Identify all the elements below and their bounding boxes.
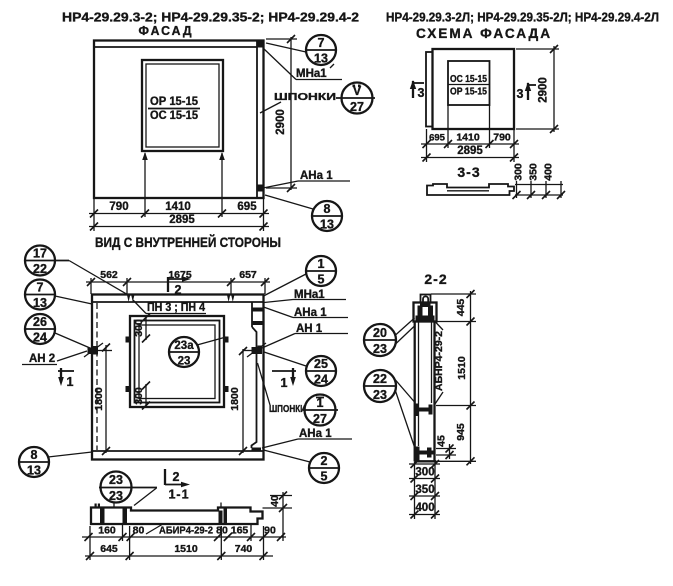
svg-text:5: 5 [321, 470, 328, 484]
svg-text:7: 7 [37, 281, 44, 295]
svg-text:ОС 15-15: ОС 15-15 [450, 73, 487, 85]
svg-text:1510: 1510 [174, 543, 198, 555]
svg-text:7: 7 [318, 36, 325, 50]
svg-text:300: 300 [133, 319, 145, 337]
svg-text:8: 8 [324, 202, 331, 216]
svg-text:20: 20 [373, 326, 387, 340]
svg-text:13: 13 [320, 218, 334, 232]
svg-text:445: 445 [455, 299, 467, 317]
svg-text:160: 160 [98, 525, 116, 537]
svg-text:400: 400 [415, 502, 434, 514]
svg-text:23: 23 [178, 356, 191, 368]
svg-text:740: 740 [235, 543, 253, 555]
svg-text:90: 90 [264, 525, 276, 537]
svg-text:1: 1 [318, 257, 325, 271]
svg-text:5: 5 [318, 273, 325, 287]
svg-text:27: 27 [313, 412, 327, 426]
svg-text:АНа 1: АНа 1 [299, 428, 332, 440]
svg-text:1: 1 [67, 375, 74, 389]
svg-text:80: 80 [133, 525, 145, 537]
svg-text:3: 3 [418, 86, 425, 100]
svg-text:1800: 1800 [229, 387, 241, 411]
svg-text:ПН 3 ; ПН 4: ПН 3 ; ПН 4 [147, 302, 206, 314]
svg-text:АБИР4-29-2: АБИР4-29-2 [159, 525, 213, 537]
svg-text:АБНР4-29-2: АБНР4-29-2 [433, 331, 445, 391]
svg-text:1: 1 [281, 376, 288, 390]
svg-text:ШПОНКИ: ШПОНКИ [269, 403, 306, 415]
svg-text:695: 695 [237, 201, 257, 213]
svg-text:45: 45 [436, 435, 448, 447]
svg-text:945: 945 [455, 423, 467, 441]
svg-text:2895: 2895 [169, 214, 195, 226]
svg-text:8: 8 [31, 448, 38, 462]
svg-text:2900: 2900 [275, 109, 287, 135]
svg-text:2: 2 [173, 470, 180, 484]
svg-text:400: 400 [543, 163, 555, 181]
svg-text:27: 27 [350, 100, 364, 114]
svg-text:22: 22 [33, 262, 47, 276]
svg-text:2: 2 [321, 454, 328, 468]
svg-text:1510: 1510 [456, 356, 468, 380]
svg-text:3-3: 3-3 [457, 164, 480, 180]
svg-text:350: 350 [528, 163, 540, 181]
svg-text:645: 645 [100, 543, 118, 555]
svg-text:1-1: 1-1 [168, 488, 189, 502]
svg-text:657: 657 [239, 269, 257, 281]
svg-text:790: 790 [109, 201, 128, 213]
svg-text:АН 2: АН 2 [29, 353, 55, 365]
svg-text:24: 24 [314, 373, 328, 387]
svg-text:165: 165 [231, 525, 249, 537]
svg-text:13: 13 [27, 464, 41, 478]
svg-text:790: 790 [493, 132, 511, 144]
svg-text:23а: 23а [174, 340, 194, 352]
svg-text:80: 80 [216, 525, 228, 537]
svg-text:23: 23 [373, 342, 387, 356]
svg-text:562: 562 [100, 269, 118, 281]
svg-text:300: 300 [415, 467, 434, 479]
svg-text:СХЕМА ФАСАДА: СХЕМА ФАСАДА [416, 25, 552, 41]
svg-text:ОР 15-15: ОР 15-15 [150, 96, 199, 108]
svg-text:350: 350 [415, 484, 434, 496]
svg-text:300: 300 [513, 163, 525, 181]
svg-text:695: 695 [429, 133, 446, 144]
svg-text:3: 3 [517, 87, 524, 101]
svg-text:24: 24 [33, 331, 47, 345]
svg-text:23: 23 [373, 388, 387, 402]
svg-text:ОР 15-15: ОР 15-15 [450, 86, 487, 98]
svg-text:1410: 1410 [165, 201, 191, 213]
svg-text:17: 17 [33, 247, 47, 261]
svg-text:23: 23 [109, 473, 123, 487]
svg-text:ШПОНКИ: ШПОНКИ [274, 91, 336, 103]
svg-text:1800: 1800 [93, 387, 105, 411]
svg-text:2895: 2895 [457, 145, 483, 157]
svg-text:25: 25 [314, 357, 328, 371]
svg-text:13: 13 [314, 52, 328, 66]
svg-text:13: 13 [33, 296, 47, 310]
svg-text:40: 40 [269, 495, 281, 507]
svg-text:22: 22 [373, 372, 387, 386]
svg-text:АНа 1: АНа 1 [300, 170, 333, 182]
svg-text:НР4-29.29.3-2; НР4-29.29.35-2;: НР4-29.29.3-2; НР4-29.29.35-2; НР4-29.29… [62, 10, 359, 25]
svg-text:ОС 15-15: ОС 15-15 [150, 110, 199, 122]
svg-text:1410: 1410 [456, 132, 480, 144]
svg-text:ФАСАД: ФАСАД [139, 24, 194, 38]
svg-text:НР4-29.29.3-2Л; НР4-29.29.35-2: НР4-29.29.3-2Л; НР4-29.29.35-2Л; НР4-29.… [386, 10, 659, 25]
svg-text:300: 300 [133, 387, 145, 405]
svg-text:2900: 2900 [538, 77, 550, 103]
svg-text:23: 23 [109, 489, 123, 503]
svg-text:2-2: 2-2 [424, 271, 447, 287]
svg-text:МНа1: МНа1 [296, 68, 327, 80]
svg-text:ВИД С ВНУТРЕННЕЙ СТОРОНЫ: ВИД С ВНУТРЕННЕЙ СТОРОНЫ [95, 233, 281, 250]
svg-text:26: 26 [33, 315, 47, 329]
